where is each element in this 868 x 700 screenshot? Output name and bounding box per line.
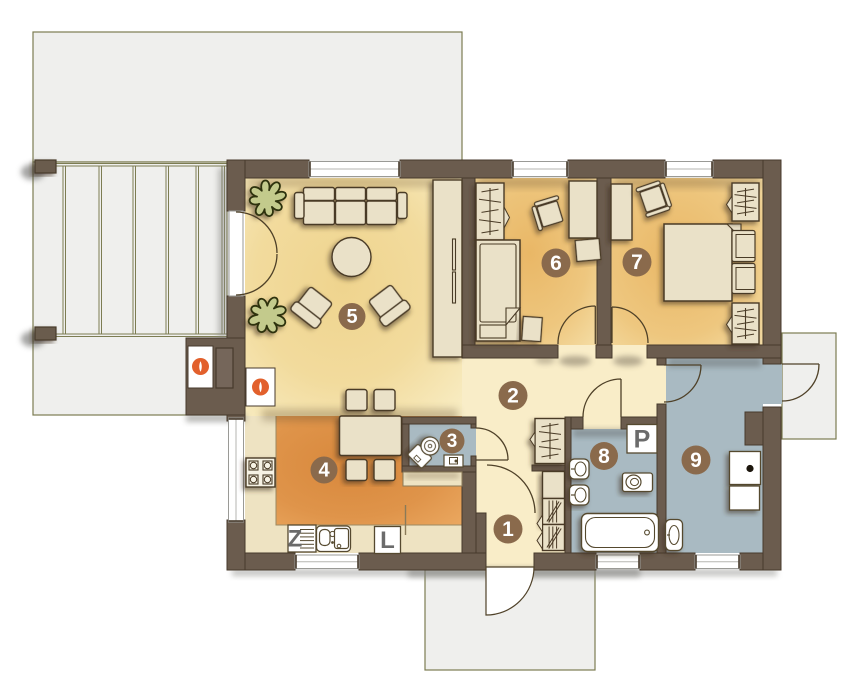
svg-text:9: 9 <box>690 449 702 472</box>
svg-text:1: 1 <box>502 518 514 541</box>
svg-text:3: 3 <box>447 431 458 452</box>
svg-text:8: 8 <box>598 445 610 468</box>
svg-text:4: 4 <box>318 460 330 482</box>
svg-text:5: 5 <box>346 306 357 328</box>
svg-text:Z: Z <box>288 526 303 553</box>
svg-text:2: 2 <box>507 385 519 408</box>
svg-text:P: P <box>634 426 651 454</box>
svg-text:7: 7 <box>631 251 643 274</box>
svg-text:6: 6 <box>550 252 562 275</box>
svg-text:L: L <box>380 527 395 554</box>
